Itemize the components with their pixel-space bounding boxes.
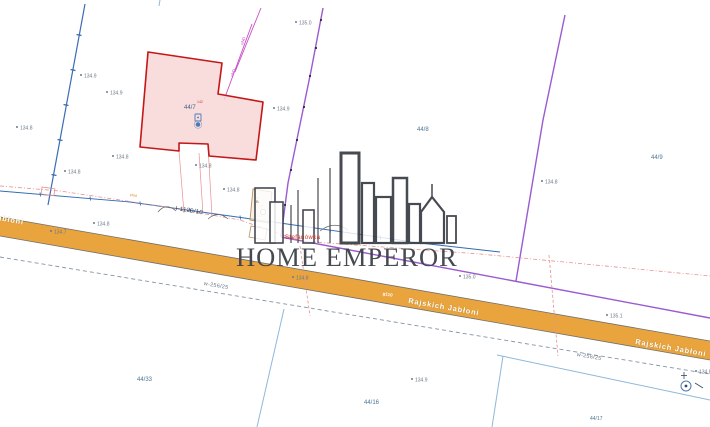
map-canvas[interactable]: 135.0 134.9 134.9 134.9 134.8 134.8 134.…	[0, 0, 710, 427]
parcel-label-44-33: 44/33	[137, 377, 152, 383]
parcel-label-44-9: 44/9	[651, 155, 663, 161]
elevation-label: 134.8	[695, 370, 710, 376]
elevation-label: 134.8	[541, 180, 558, 186]
elevation-label: 134.8	[292, 276, 309, 282]
parcel-point-code: 142	[197, 101, 203, 105]
elevation-label: 134.9	[106, 91, 123, 97]
parcel-label-44-16: 44/16	[364, 400, 379, 406]
building-type-label: B	[256, 200, 259, 204]
parcel-44-7-shape	[140, 52, 263, 160]
map-geometry	[0, 0, 710, 427]
elevation-label: 134.9	[80, 74, 97, 80]
elevation-label: 134.8	[195, 164, 212, 170]
elevation-label: 134.7	[50, 230, 67, 236]
elevation-label: 135.1	[606, 314, 623, 320]
place-name-stefanowka: Stefanówka	[285, 235, 320, 241]
elevation-label: 134.9	[273, 107, 290, 113]
elevation-label: 134.8	[64, 170, 81, 176]
elevation-label: 135.0	[295, 21, 312, 27]
parcel-label-44-17: 44/17	[590, 417, 603, 422]
boundary-lines-south	[257, 309, 710, 427]
elevation-label: 134.8	[112, 155, 129, 161]
watermark-skyline	[255, 153, 456, 243]
parcel-label-44-8: 44/8	[417, 127, 429, 133]
elevation-label: 134.8	[223, 188, 240, 194]
parcel-label-44-7: 44/7	[184, 105, 196, 111]
power-lines	[224, 8, 261, 100]
watermark-brand-text: HOME EMPEROR	[236, 244, 458, 271]
elevation-label: 134.8	[93, 222, 110, 228]
elevation-label: 134.9	[411, 378, 428, 384]
elevation-label: 134.8	[16, 126, 33, 132]
water-line	[0, 257, 710, 374]
elevation-label: 135.0	[459, 275, 476, 281]
